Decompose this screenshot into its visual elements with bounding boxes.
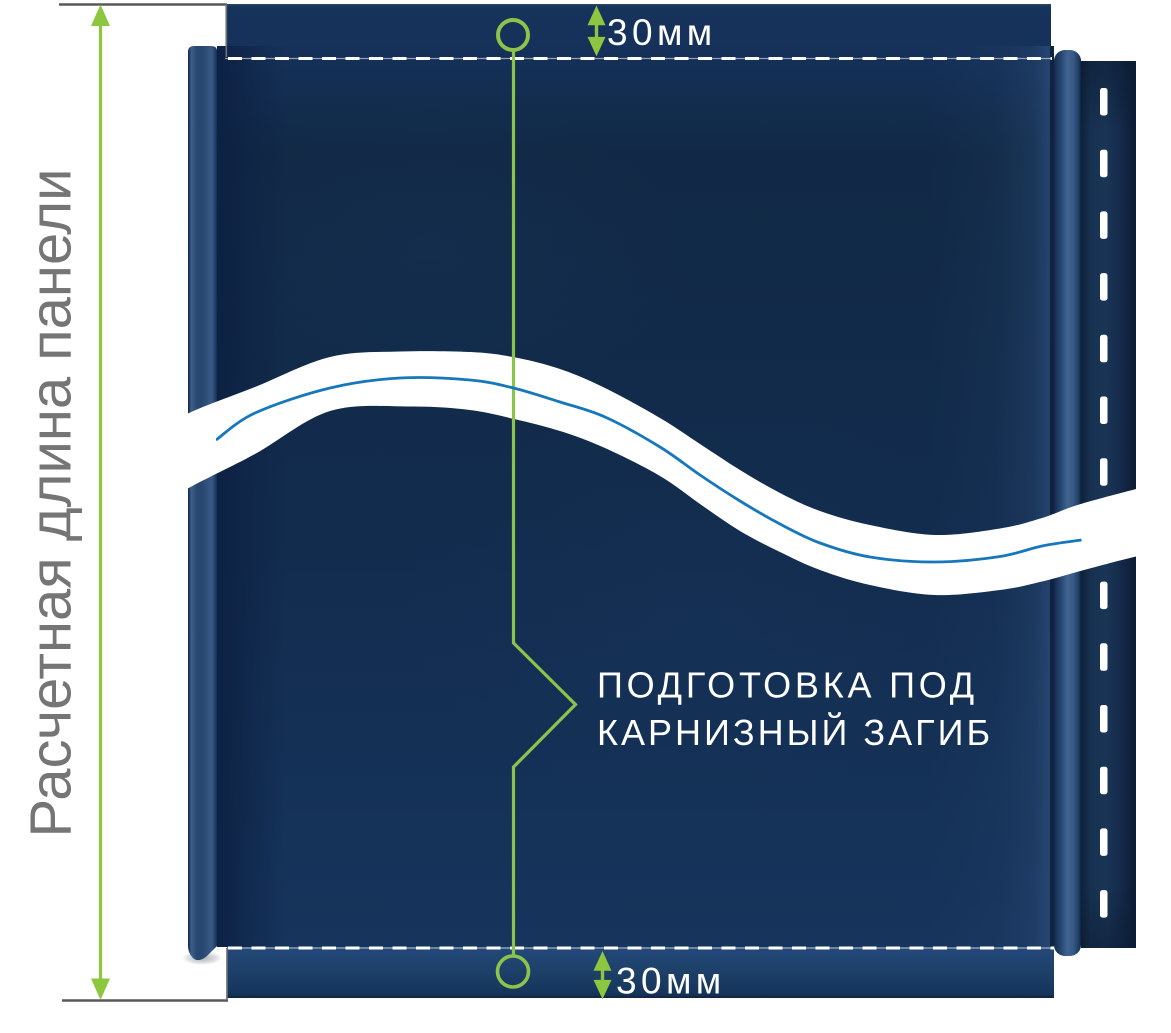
svg-text:Расчетная длина панели: Расчетная длина панели xyxy=(19,168,84,837)
svg-text:ПОДГОТОВКА ПОД: ПОДГОТОВКА ПОД xyxy=(597,665,978,706)
svg-text:КАРНИЗНЫЙ ЗАГИБ: КАРНИЗНЫЙ ЗАГИБ xyxy=(597,711,993,753)
svg-text:30мм: 30мм xyxy=(607,12,717,53)
svg-text:30мм: 30мм xyxy=(616,961,726,1002)
